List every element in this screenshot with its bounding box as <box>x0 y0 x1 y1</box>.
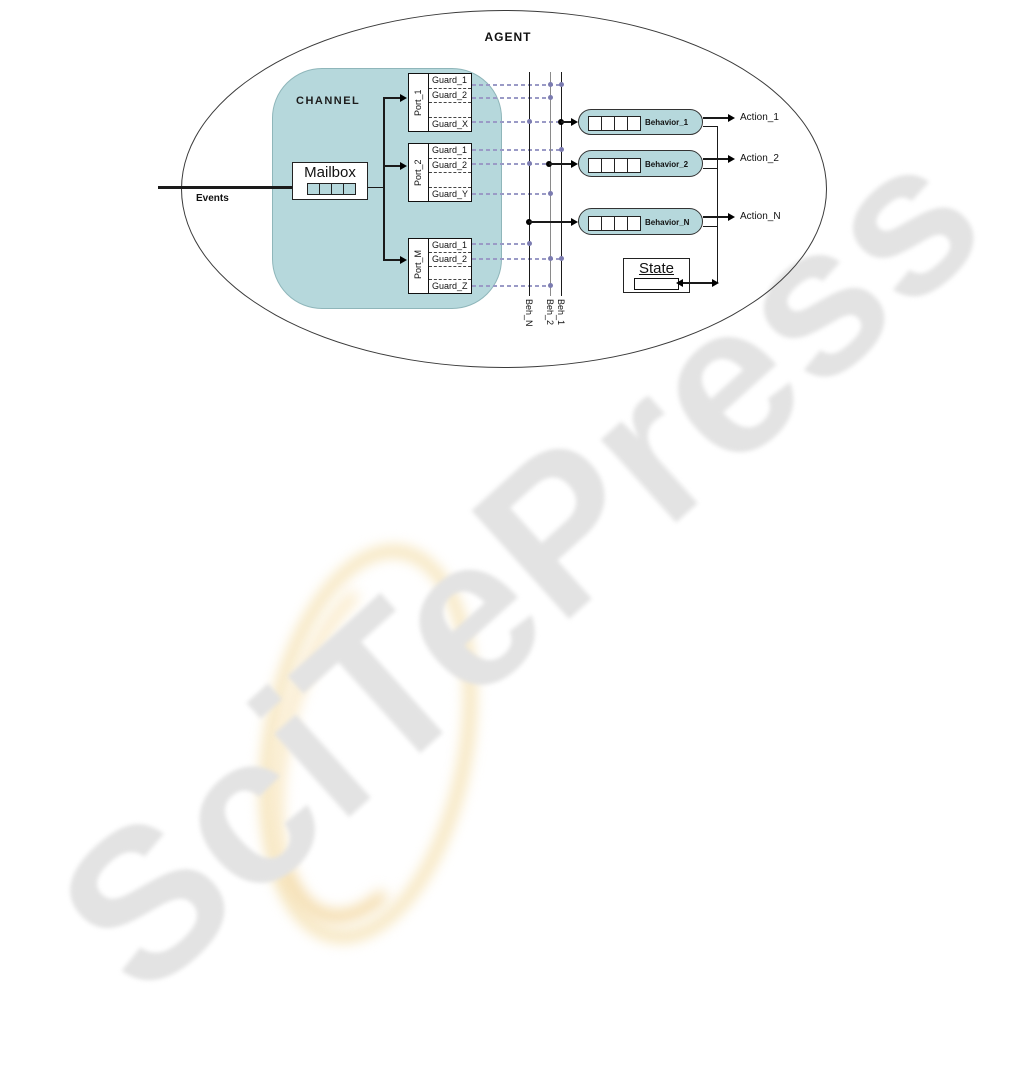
action-2-label: Action_2 <box>740 153 779 164</box>
behavior-input-line <box>529 221 571 223</box>
arrowhead-icon <box>400 256 407 264</box>
queue-cell <box>588 216 602 231</box>
queue-cell <box>627 116 641 131</box>
guard-row: Guard_2 <box>429 253 471 267</box>
queue-cell <box>601 158 615 173</box>
port-m-label: Port_M <box>413 250 423 279</box>
arrowhead-icon <box>712 279 719 287</box>
guard-list: Guard_1 Guard_2 Guard_Z <box>429 239 471 293</box>
arrowhead-icon <box>728 155 735 163</box>
state-value-slot <box>634 278 679 290</box>
guard-list: Guard_1 Guard_2 Guard_X <box>429 74 471 131</box>
queue-cell <box>343 183 356 195</box>
queue-cell <box>614 116 628 131</box>
junction-dot <box>548 191 553 196</box>
queue-cell <box>627 216 641 231</box>
junction-dot <box>559 147 564 152</box>
guard-row <box>429 173 471 188</box>
feedback-line <box>703 168 717 169</box>
bus-line-beh-n <box>529 72 530 296</box>
junction-dot <box>559 256 564 261</box>
behavior-input-line <box>549 163 571 165</box>
connector-line <box>383 259 400 261</box>
connector-line <box>383 165 400 167</box>
events-label: Events <box>196 193 229 204</box>
arrowhead-icon <box>400 94 407 102</box>
guard-row: Guard_2 <box>429 89 471 104</box>
action-arrow-line <box>703 117 728 119</box>
junction-dot <box>548 256 553 261</box>
guard-connection <box>472 285 551 287</box>
behavior-2-label: Behavior_2 <box>645 160 688 169</box>
action-arrow-line <box>703 216 728 218</box>
queue-cell <box>601 216 615 231</box>
feedback-line <box>703 126 717 127</box>
queue-cell <box>588 158 602 173</box>
guard-row: Guard_Y <box>429 188 471 202</box>
bus-label-beh-2: Beh_2 <box>545 299 555 325</box>
guard-connection <box>472 121 558 123</box>
junction-dot <box>527 161 532 166</box>
page: SciTePress AGENT CHANNEL Events Mailbox … <box>0 0 1012 1077</box>
junction-dot <box>527 241 532 246</box>
arrowhead-icon <box>676 279 683 287</box>
bus-line-beh-1 <box>561 72 562 296</box>
guard-connection <box>472 243 530 245</box>
guard-row <box>429 103 471 118</box>
feedback-line <box>703 226 717 227</box>
mailbox-box: Mailbox <box>292 162 368 200</box>
arrowhead-icon <box>400 162 407 170</box>
connector-line <box>383 97 400 99</box>
arrowhead-icon <box>728 213 735 221</box>
action-arrow-line <box>703 158 728 160</box>
guard-row: Guard_1 <box>429 144 471 159</box>
behavior-queue-cells <box>589 216 641 231</box>
arrowhead-icon <box>571 160 578 168</box>
bus-label-beh-n: Beh_N <box>524 299 534 327</box>
feedback-bus-line <box>717 126 718 283</box>
events-arrow-line <box>158 186 296 189</box>
state-label: State <box>624 260 689 277</box>
junction-dot <box>559 82 564 87</box>
guard-connection <box>472 149 562 151</box>
guard-list: Guard_1 Guard_2 Guard_Y <box>429 144 471 201</box>
mailbox-label: Mailbox <box>293 164 367 181</box>
queue-cell <box>601 116 615 131</box>
junction-dot <box>548 283 553 288</box>
state-feedback-line <box>682 282 713 284</box>
queue-cell <box>627 158 641 173</box>
port-1-label: Port_1 <box>413 89 423 116</box>
action-1-label: Action_1 <box>740 112 779 123</box>
queue-cell <box>588 116 602 131</box>
bus-line-beh-2 <box>550 72 551 296</box>
mailbox-queue-cells <box>308 183 356 195</box>
state-box: State <box>623 258 690 293</box>
arrowhead-icon <box>728 114 735 122</box>
arrowhead-icon <box>571 118 578 126</box>
arrowhead-icon <box>571 218 578 226</box>
behavior-n-pill: Behavior_N <box>578 208 703 235</box>
port-branch-line <box>383 98 385 261</box>
behavior-n-label: Behavior_N <box>645 218 689 227</box>
queue-cell <box>614 158 628 173</box>
queue-cell <box>614 216 628 231</box>
channel-label: CHANNEL <box>296 95 360 107</box>
guard-row: Guard_1 <box>429 239 471 253</box>
port-2-label: Port_2 <box>413 159 423 186</box>
guard-row: Guard_2 <box>429 159 471 174</box>
behavior-1-label: Behavior_1 <box>645 118 688 127</box>
guard-row: Guard_X <box>429 118 471 132</box>
guard-row <box>429 267 471 281</box>
guard-connection <box>472 193 551 195</box>
guard-row: Guard_1 <box>429 74 471 89</box>
connector-line <box>368 187 383 188</box>
bus-label-beh-1: Beh_1 <box>556 299 566 325</box>
junction-dot <box>527 119 532 124</box>
guard-row: Guard_Z <box>429 280 471 293</box>
behavior-2-pill: Behavior_2 <box>578 150 703 177</box>
junction-dot <box>548 95 553 100</box>
behavior-1-pill: Behavior_1 <box>578 109 703 135</box>
behavior-queue-cells <box>589 158 641 173</box>
guard-connection <box>472 97 551 99</box>
agent-label: AGENT <box>438 30 578 44</box>
junction-dot <box>548 82 553 87</box>
action-n-label: Action_N <box>740 211 781 222</box>
guard-connection <box>472 163 547 165</box>
behavior-queue-cells <box>589 116 641 131</box>
